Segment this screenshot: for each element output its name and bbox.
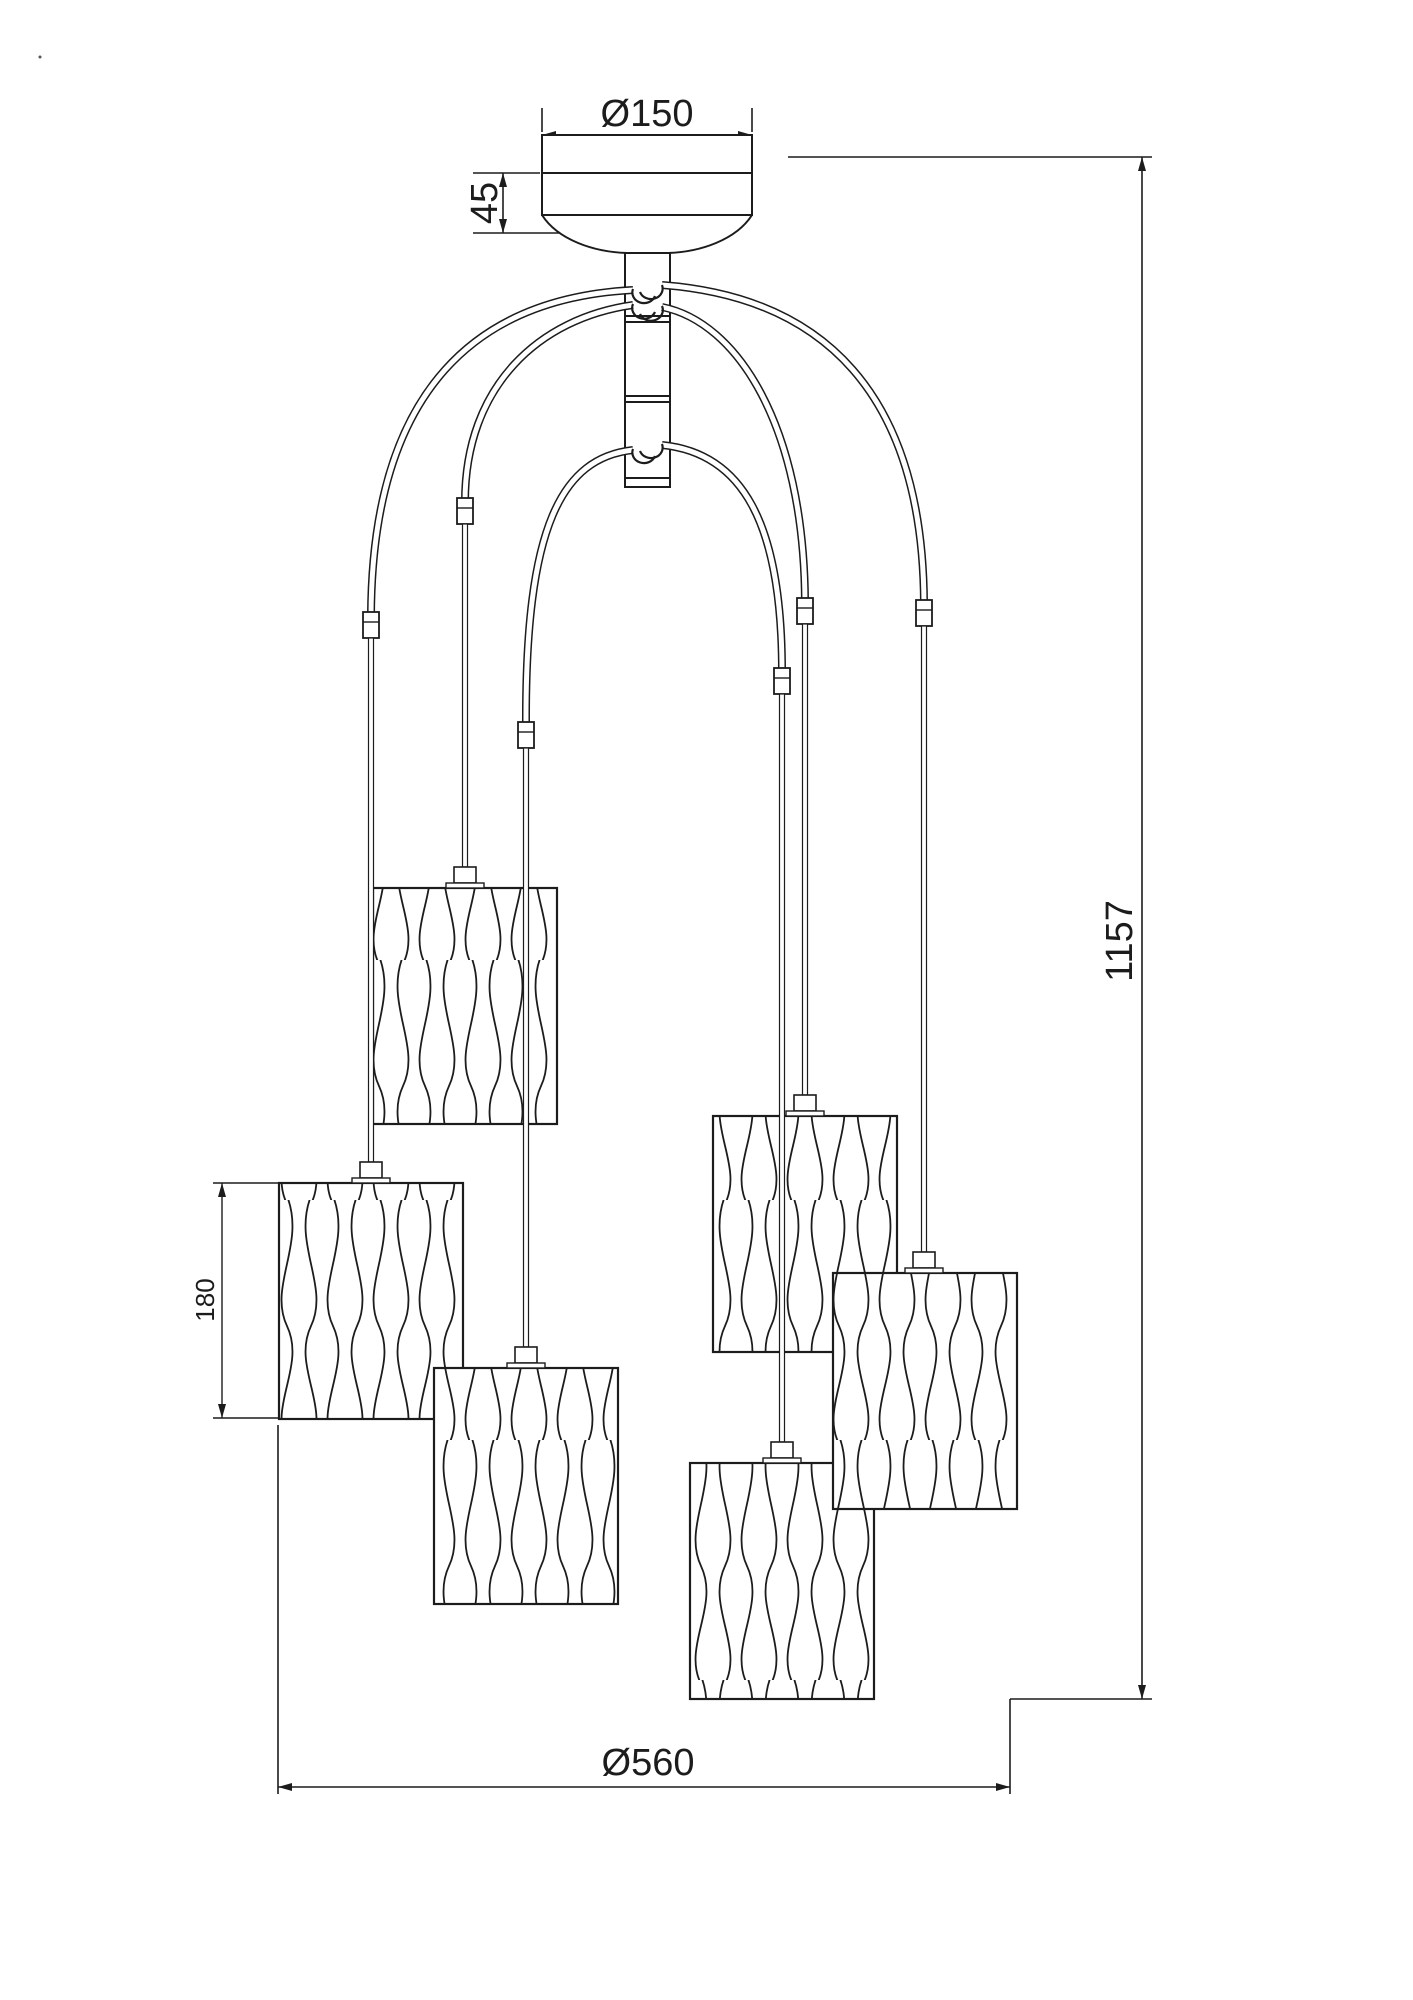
- technical-drawing-page: Ø150 45 1157 180 Ø560: [0, 0, 1413, 2000]
- label-total-height: 1157: [1101, 900, 1139, 982]
- label-shade-height: 180: [192, 1278, 218, 1321]
- chandelier-dimension-drawing: [0, 0, 1413, 2000]
- arm-left-outer: [371, 290, 633, 616]
- label-canopy-diameter: Ø150: [601, 95, 694, 133]
- dimension-shade-height: [213, 1183, 283, 1418]
- arm-right-outer: [662, 285, 924, 604]
- stray-mark: [39, 56, 42, 59]
- label-overall-diameter: Ø560: [602, 1744, 695, 1782]
- suspension-shade-4: [786, 598, 824, 1116]
- shade-3: [434, 1368, 618, 1604]
- arm-right-middle: [662, 307, 805, 602]
- ceiling-canopy: [542, 135, 752, 253]
- arm-left-inner: [526, 450, 633, 726]
- arm-right-inner: [662, 445, 782, 672]
- label-canopy-height: 45: [466, 182, 504, 224]
- lamp-shades: [279, 888, 1017, 1699]
- shade-1: [373, 888, 557, 1124]
- shade-6: [833, 1273, 1017, 1509]
- suspension-shade-1: [446, 498, 484, 888]
- suspension-shade-6: [905, 600, 943, 1273]
